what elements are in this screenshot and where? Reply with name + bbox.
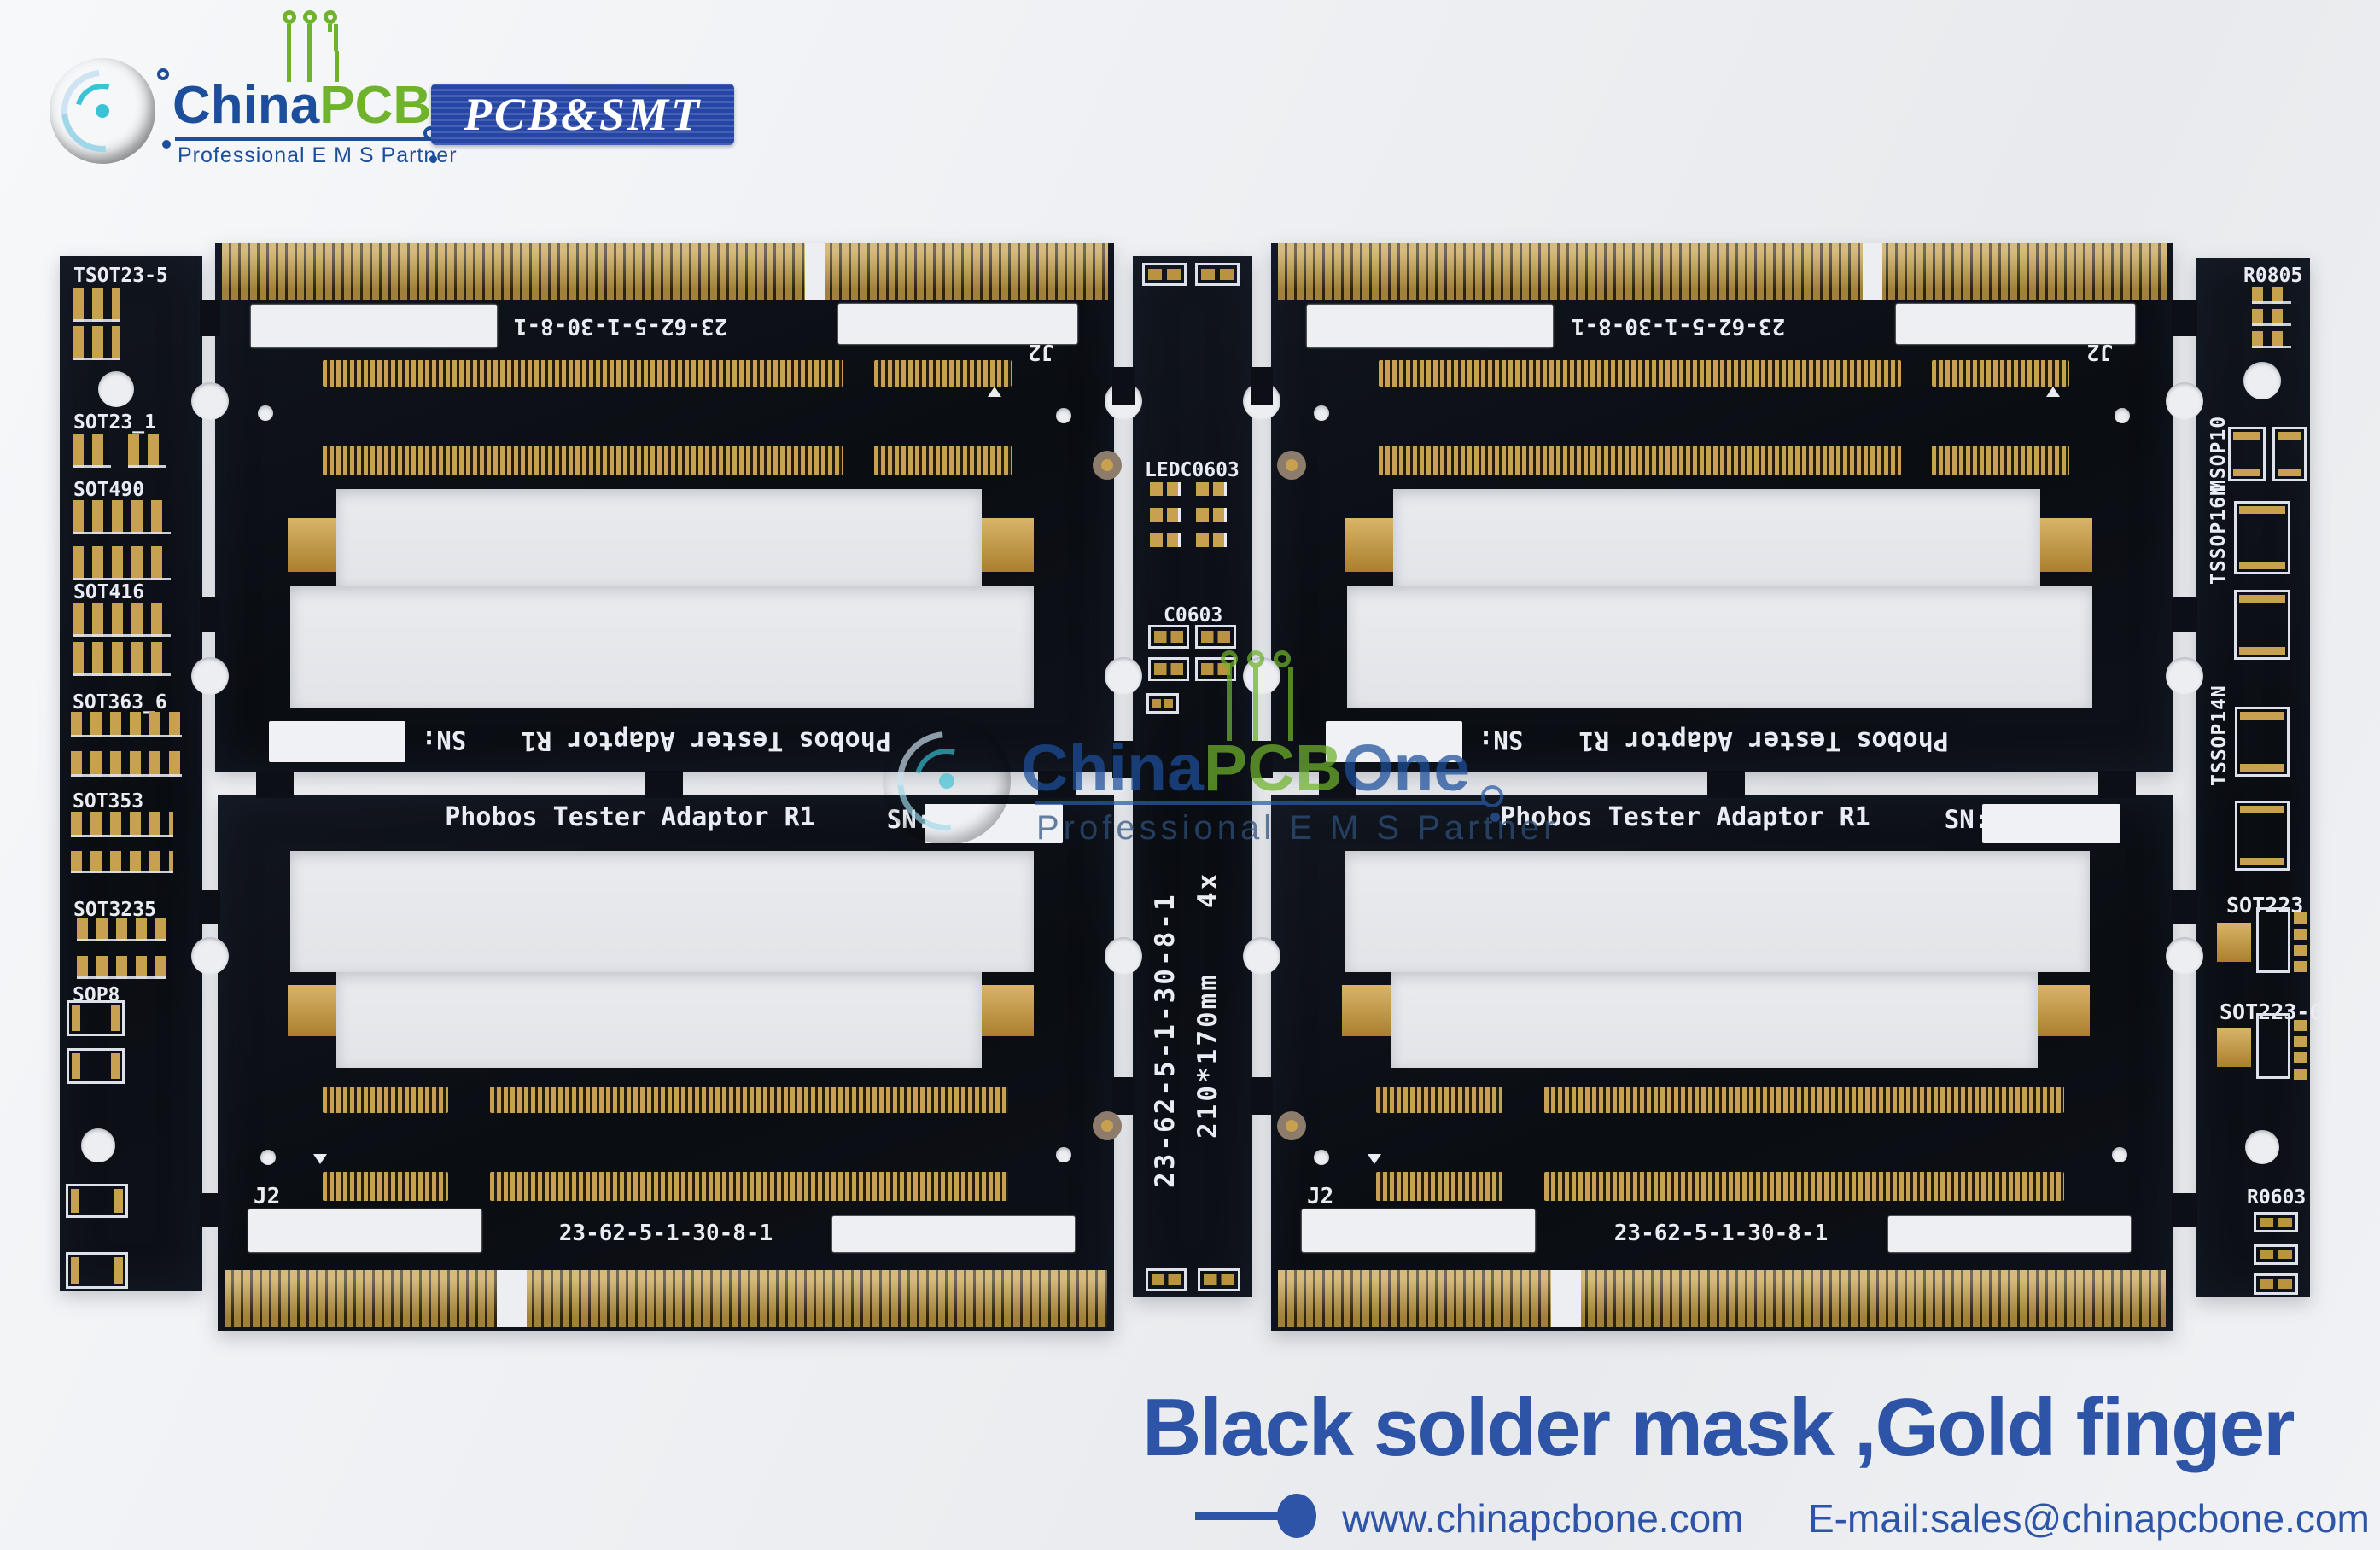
logo-node-icon bbox=[157, 68, 169, 80]
c0603-footprint bbox=[1195, 263, 1240, 286]
logo-word-china: China bbox=[172, 76, 319, 135]
sot223-tab-pad bbox=[2217, 923, 2251, 962]
footprint-pads bbox=[77, 918, 166, 941]
silkscreen-rect bbox=[251, 305, 497, 347]
led-pad-pair bbox=[1196, 482, 1227, 496]
router-slot-end bbox=[191, 382, 229, 420]
circuit-sprout-node-icon bbox=[283, 10, 296, 24]
led-pad-pair bbox=[1196, 508, 1227, 522]
mouse-bite-bridge bbox=[200, 890, 220, 924]
small-hole bbox=[1056, 408, 1071, 423]
finger-notch bbox=[805, 243, 825, 300]
gold-fingers bbox=[1278, 1270, 2166, 1327]
mouse-bite-bridge bbox=[2172, 1193, 2197, 1227]
footprint-label: SOT363_6 bbox=[73, 691, 167, 714]
sop8-footprint bbox=[66, 1184, 128, 1218]
silkscreen-rect bbox=[1888, 1216, 2131, 1252]
edge-gold-pad bbox=[288, 985, 336, 1036]
mouse-bite-bridge bbox=[2172, 597, 2197, 632]
connector-pad-row bbox=[490, 1172, 1008, 1201]
watermark: ChinaPCBOne Professional E M S Partner bbox=[879, 640, 1528, 862]
small-hole bbox=[1314, 405, 1329, 421]
board-cutout-window bbox=[1391, 972, 2038, 1068]
footprint-pads bbox=[2252, 331, 2291, 348]
mouse-bite-bridge bbox=[2098, 771, 2136, 798]
silkscreen-rect bbox=[1307, 305, 1553, 347]
tssop-footprint bbox=[2235, 707, 2290, 777]
watermark-tagline: Professional E M S Partner bbox=[1036, 809, 1559, 848]
via bbox=[1277, 451, 1306, 480]
footprint-pads bbox=[128, 434, 166, 468]
serial-number-box bbox=[1982, 804, 2120, 843]
mouse-bite-bridge bbox=[1251, 367, 1273, 405]
tooling-hole bbox=[81, 1128, 115, 1162]
footer-bullet-icon bbox=[1277, 1494, 1316, 1538]
pcb-board-bottom-right: Phobos Tester Adaptor R1 SN: J2 23-62-5-… bbox=[1271, 795, 2173, 1331]
panel-size-vertical: 210*170mm bbox=[1193, 925, 1223, 1139]
board-cutout-window bbox=[336, 489, 982, 586]
footprint-label: C0603 bbox=[1164, 604, 1222, 626]
footprint-pads bbox=[77, 956, 166, 979]
sop8-footprint bbox=[66, 1252, 128, 1289]
watermark-underline bbox=[1035, 801, 1487, 805]
footer-website: www.chinapcbone.com bbox=[1342, 1495, 1743, 1541]
circuit-sprout-icon bbox=[1280, 667, 1293, 705]
finger-notch bbox=[1863, 243, 1882, 300]
small-hole bbox=[260, 1150, 276, 1165]
mouse-bite-bridge bbox=[200, 300, 220, 336]
mouse-bite-bridge bbox=[645, 771, 683, 798]
board-title: Phobos Tester Adaptor R1 bbox=[1567, 725, 1960, 755]
headline: Black solder mask ,Gold finger bbox=[1142, 1381, 2293, 1475]
gold-fingers bbox=[1278, 243, 2167, 300]
led-pad-pair bbox=[1150, 482, 1181, 496]
board-id-text: 23-62-5-1-30-8-1 bbox=[542, 1221, 790, 1246]
footprint-pads bbox=[73, 603, 171, 637]
footprint-label: SOT490 bbox=[73, 479, 144, 501]
edge-gold-pad bbox=[982, 985, 1034, 1036]
router-slot-end bbox=[191, 937, 229, 975]
edge-gold-pad bbox=[288, 518, 336, 572]
connector-ref: J2 bbox=[2086, 339, 2113, 364]
circuit-sprout-icon bbox=[307, 24, 312, 82]
silkscreen-rect bbox=[248, 1209, 481, 1252]
mouse-bite-bridge bbox=[1112, 1077, 1135, 1115]
panel-right-rail: R0805 MSOP10 TSSOP16N TSSOP14N SOT223 SO… bbox=[2196, 258, 2310, 1297]
board-id-text: 23-62-5-1-30-8-1 bbox=[1555, 313, 1802, 339]
footprint-pads bbox=[73, 326, 120, 360]
router-slot-end bbox=[1105, 937, 1142, 975]
small-hole bbox=[2112, 1147, 2127, 1162]
board-cutout-window bbox=[1345, 851, 2090, 972]
connector-pad-row bbox=[323, 1172, 448, 1201]
connector-pad-row bbox=[1932, 446, 2069, 475]
connector-pad-row bbox=[874, 446, 1012, 475]
serial-number-box bbox=[269, 721, 405, 762]
mouse-bite-bridge bbox=[2172, 890, 2197, 924]
msop-footprint bbox=[2228, 427, 2266, 481]
pcb-smt-badge: PCB&SMT bbox=[431, 84, 734, 145]
footprint-label: TSSOP14N bbox=[2208, 701, 2231, 786]
watermark-wordmark: ChinaPCBOne bbox=[1021, 731, 1470, 807]
logo-node-icon bbox=[1481, 785, 1503, 807]
tssop-footprint bbox=[2234, 501, 2290, 574]
footprint-label: TSSOP16N bbox=[2208, 499, 2230, 585]
footprint-pads bbox=[71, 751, 182, 777]
c0603-footprint bbox=[1198, 1268, 1240, 1291]
silkscreen-rect bbox=[832, 1216, 1075, 1252]
pcb-board-bottom-left: Phobos Tester Adaptor R1 SN: J2 23-62-5-… bbox=[218, 795, 1114, 1331]
badge-label: PCB&SMT bbox=[464, 88, 702, 141]
watermark-word-china: China bbox=[1021, 731, 1204, 805]
connector-ref: J2 bbox=[1307, 1184, 1333, 1209]
sot223-tab-pad bbox=[2217, 1028, 2251, 1067]
router-slot-end bbox=[2166, 657, 2203, 695]
pin1-mark-icon bbox=[2046, 387, 2060, 397]
footer-email: E-mail:sales@chinapcbone.com bbox=[1808, 1495, 2370, 1541]
footprint-label: TSOT23-5 bbox=[73, 265, 168, 287]
connector-pad-row bbox=[1379, 446, 1901, 475]
circuit-sprout-node-icon bbox=[1274, 650, 1291, 667]
led-pad-pair bbox=[1150, 533, 1181, 547]
sot223-footprint bbox=[2256, 1013, 2290, 1079]
msop-footprint bbox=[2272, 427, 2307, 481]
logo-underline bbox=[175, 137, 431, 141]
connector-pad-row bbox=[323, 446, 843, 475]
footprint-pads bbox=[73, 500, 171, 534]
board-title: Phobos Tester Adaptor R1 bbox=[434, 802, 826, 832]
pin1-mark-icon bbox=[1368, 1154, 1381, 1164]
connector-pad-row bbox=[874, 360, 1012, 387]
c0603-footprint bbox=[2254, 1244, 2298, 1265]
mouse-bite-bridge bbox=[1707, 771, 1745, 798]
circuit-sprout-icon bbox=[287, 24, 291, 82]
footprint-label: MSOP10 bbox=[2208, 420, 2230, 492]
footer-rule bbox=[1195, 1512, 1282, 1520]
c0603-footprint bbox=[2254, 1212, 2298, 1232]
connector-pad-row bbox=[1376, 1087, 1502, 1113]
circuit-sprout-icon bbox=[1227, 667, 1232, 741]
product-photo: ChinaPCBOne Professional E M S Partner P… bbox=[0, 0, 2380, 1550]
via bbox=[1093, 1111, 1122, 1140]
router-slot-end bbox=[2166, 382, 2203, 420]
footprint-pads bbox=[2252, 287, 2291, 304]
sot223-pads bbox=[2294, 909, 2307, 972]
panel-left-rail: TSOT23-5 SOT23_1 SOT490 SOT416 SOT363_6 … bbox=[60, 256, 202, 1291]
c0603-footprint bbox=[2254, 1273, 2298, 1295]
gold-fingers bbox=[225, 1270, 1107, 1327]
watermark-logo-icon bbox=[883, 717, 1011, 845]
connector-pad-row bbox=[1544, 1172, 2064, 1201]
mouse-bite-bridge bbox=[200, 597, 220, 632]
footprint-label: R0603 bbox=[2247, 1186, 2306, 1209]
mouse-bite-bridge bbox=[200, 1193, 220, 1227]
silkscreen-rect bbox=[1302, 1209, 1535, 1252]
router-slot-end bbox=[2166, 937, 2203, 975]
footprint-pads bbox=[71, 812, 173, 837]
connector-ref: J2 bbox=[1028, 339, 1054, 364]
tssop-footprint bbox=[2235, 801, 2290, 871]
connector-pad-row bbox=[490, 1087, 1008, 1113]
board-cutout-window bbox=[290, 851, 1034, 972]
via bbox=[1093, 451, 1122, 480]
board-cutout-window bbox=[336, 972, 982, 1068]
edge-gold-pad bbox=[2038, 985, 2090, 1036]
footprint-label: LEDC0603 bbox=[1145, 459, 1240, 481]
circuit-sprout-icon bbox=[1288, 703, 1293, 741]
footprint-label: SOT23_1 bbox=[73, 411, 156, 434]
logo-node-icon bbox=[162, 140, 171, 149]
connector-pad-row bbox=[323, 1087, 448, 1113]
footprint-pads bbox=[73, 642, 171, 676]
via bbox=[1277, 1111, 1306, 1140]
watermark-word-one: One bbox=[1342, 731, 1470, 805]
connector-pad-row bbox=[1379, 360, 1901, 387]
led-pad-pair bbox=[1196, 533, 1227, 547]
small-hole bbox=[1314, 1150, 1329, 1165]
mouse-bite-bridge bbox=[2172, 300, 2197, 336]
footprint-label: R0805 bbox=[2243, 265, 2302, 287]
sot223-pads bbox=[2294, 1015, 2307, 1080]
watermark-word-pcb: PCB bbox=[1204, 731, 1343, 805]
connector-pad-row bbox=[1932, 360, 2069, 387]
tooling-hole bbox=[2245, 1130, 2279, 1164]
edge-gold-pad bbox=[982, 518, 1034, 572]
footprint-label: SOT416 bbox=[73, 581, 144, 603]
board-id-text: 23-62-5-1-30-8-1 bbox=[1597, 1221, 1845, 1246]
pin1-mark-icon bbox=[988, 387, 1001, 397]
edge-gold-pad bbox=[2040, 518, 2092, 572]
mouse-bite-bridge bbox=[1112, 367, 1135, 405]
footprint-label: SOT353 bbox=[73, 790, 143, 813]
tooling-hole bbox=[2243, 362, 2281, 399]
chinapcbone-logo-icon bbox=[50, 58, 155, 164]
connector-pad-row bbox=[323, 360, 843, 387]
logo-dot-icon bbox=[939, 773, 954, 789]
footprint-pads bbox=[73, 546, 171, 580]
circuit-sprout-node-icon bbox=[303, 10, 317, 24]
c0603-footprint bbox=[1146, 1268, 1187, 1291]
edge-gold-pad bbox=[1342, 985, 1391, 1036]
logo-dot-icon bbox=[96, 104, 109, 118]
footprint-pads bbox=[73, 434, 111, 468]
board-title: Phobos Tester Adaptor R1 bbox=[510, 725, 902, 755]
edge-gold-pad bbox=[1345, 518, 1393, 572]
circuit-sprout-icon bbox=[1253, 667, 1258, 741]
circuit-sprout-node-icon bbox=[1247, 650, 1264, 667]
gold-fingers bbox=[222, 243, 1108, 300]
board-cutout-window bbox=[1393, 489, 2040, 586]
router-slot-end bbox=[1243, 937, 1280, 975]
sn-label: SN: bbox=[414, 725, 474, 755]
footprint-pads bbox=[2252, 309, 2291, 326]
connector-pad-row bbox=[1376, 1172, 1502, 1201]
silkscreen-rect bbox=[838, 304, 1077, 344]
small-hole bbox=[2115, 408, 2130, 423]
mouse-bite-bridge bbox=[1251, 1077, 1273, 1115]
logo-tagline: Professional E M S Partner bbox=[178, 143, 458, 168]
footprint-pads bbox=[71, 851, 173, 873]
c0603-footprint bbox=[1142, 263, 1187, 286]
tssop-footprint bbox=[2234, 590, 2290, 660]
footprint-pads bbox=[71, 712, 182, 737]
footprint-pads bbox=[73, 288, 120, 322]
silkscreen-rect bbox=[1896, 304, 2135, 344]
tooling-hole bbox=[98, 371, 134, 407]
circuit-sprout-node-icon bbox=[324, 10, 337, 24]
router-slot-end bbox=[191, 657, 229, 695]
small-hole bbox=[1056, 1147, 1071, 1162]
pin1-mark-icon bbox=[313, 1154, 327, 1164]
connector-pad-row bbox=[1544, 1087, 2064, 1113]
circuit-sprout-node-icon bbox=[1221, 650, 1238, 667]
board-id-text: 23-62-5-1-30-8-1 bbox=[497, 313, 744, 339]
finger-notch bbox=[497, 1270, 527, 1327]
finger-notch bbox=[1551, 1270, 1581, 1327]
logo-word-pcb: PCB bbox=[319, 76, 431, 135]
small-hole bbox=[258, 405, 273, 421]
sop8-footprint bbox=[67, 1000, 125, 1036]
sop8-footprint bbox=[67, 1048, 125, 1084]
circuit-sprout-icon bbox=[328, 24, 332, 32]
mouse-bite-bridge bbox=[256, 771, 294, 798]
led-pad-pair bbox=[1150, 508, 1181, 522]
sot223-footprint bbox=[2256, 907, 2290, 973]
circuit-sprout-icon bbox=[335, 51, 339, 82]
connector-ref: J2 bbox=[254, 1184, 280, 1209]
